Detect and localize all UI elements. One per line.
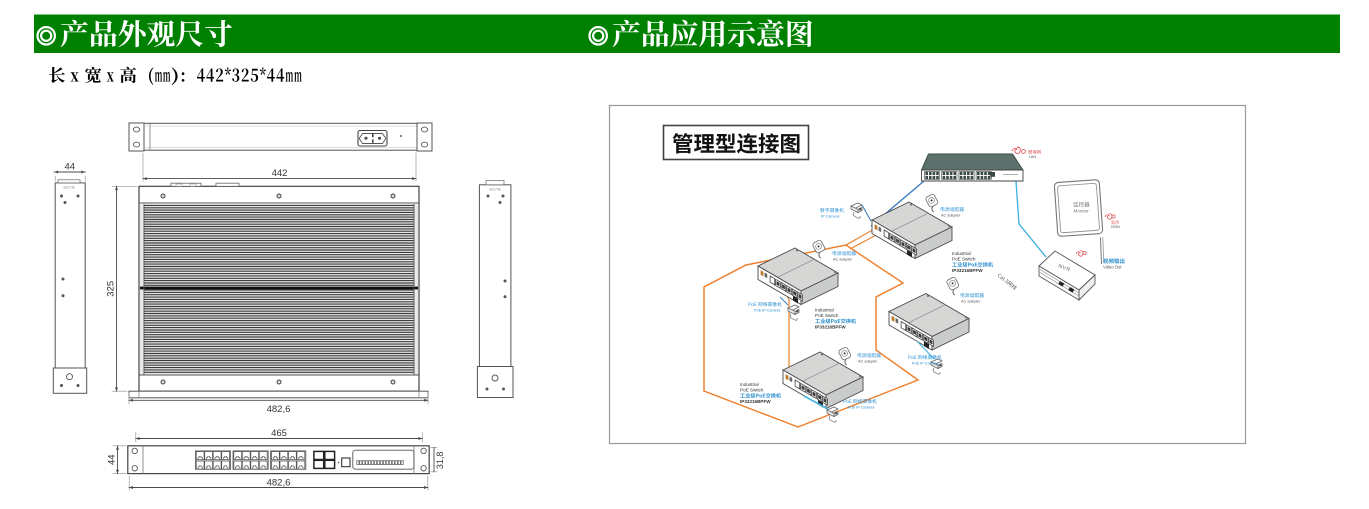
svg-text:PoE IP Camera: PoE IP Camera <box>754 309 781 313</box>
svg-text:IP33216BPFW: IP33216BPFW <box>740 399 771 404</box>
svg-text:PoE Switch: PoE Switch <box>815 313 839 318</box>
svg-text:IP33216BPFW: IP33216BPFW <box>952 268 983 273</box>
svg-text:Video Out: Video Out <box>1103 265 1122 270</box>
svg-text:AC adapter: AC adapter <box>961 300 981 304</box>
svg-text:LAN: LAN <box>1029 155 1036 159</box>
svg-text:442: 442 <box>272 168 288 179</box>
svg-text:AC adapter: AC adapter <box>941 214 961 218</box>
svg-text:44: 44 <box>64 162 75 173</box>
svg-text:B01738: B01738 <box>490 188 501 192</box>
svg-text:PoE IP Camera: PoE IP Camera <box>912 362 939 366</box>
svg-text:325: 325 <box>106 281 117 297</box>
svg-text:B01738: B01738 <box>64 186 75 190</box>
svg-text:Industrial: Industrial <box>815 308 834 313</box>
svg-text:PoE Switch: PoE Switch <box>740 388 764 393</box>
svg-text:IP Camera: IP Camera <box>821 215 840 219</box>
svg-text:482,6: 482,6 <box>267 404 291 415</box>
svg-text:PoE IP Camera: PoE IP Camera <box>848 406 875 410</box>
svg-text:PoE Switch: PoE Switch <box>952 257 976 262</box>
svg-text:465: 465 <box>271 428 287 439</box>
svg-text:482,6: 482,6 <box>267 478 291 489</box>
svg-text:44: 44 <box>107 454 118 465</box>
svg-text:IP33216BPFW: IP33216BPFW <box>815 325 846 330</box>
svg-text:Industrial: Industrial <box>740 382 759 387</box>
svg-text:31,8: 31,8 <box>435 452 445 470</box>
svg-text:AC adapter: AC adapter <box>858 360 878 364</box>
svg-text:HDMI: HDMI <box>1111 225 1120 229</box>
svg-text:AC adapter: AC adapter <box>833 258 853 262</box>
svg-text:Monitor: Monitor <box>1074 209 1090 214</box>
svg-text:Industrial: Industrial <box>952 251 971 256</box>
